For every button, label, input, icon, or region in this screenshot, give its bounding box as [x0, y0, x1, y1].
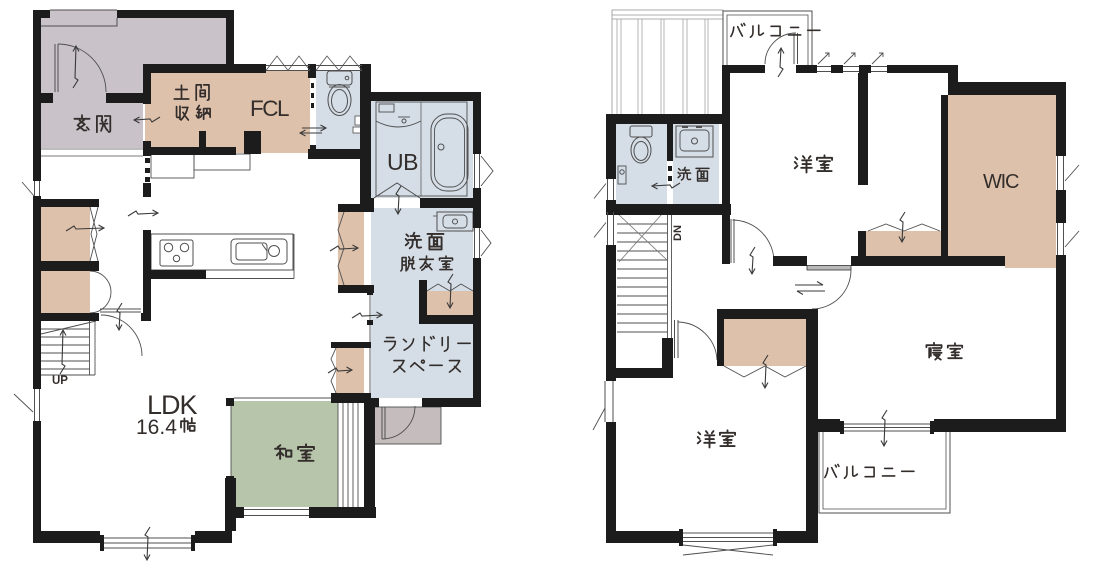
svg-text:16.4: 16.4: [136, 416, 177, 439]
svg-text:UP: UP: [52, 375, 68, 387]
svg-text:UB: UB: [387, 149, 418, 175]
svg-text:FCL: FCL: [250, 96, 289, 121]
svg-text:DN: DN: [672, 225, 684, 241]
svg-text:WIC: WIC: [983, 171, 1019, 193]
